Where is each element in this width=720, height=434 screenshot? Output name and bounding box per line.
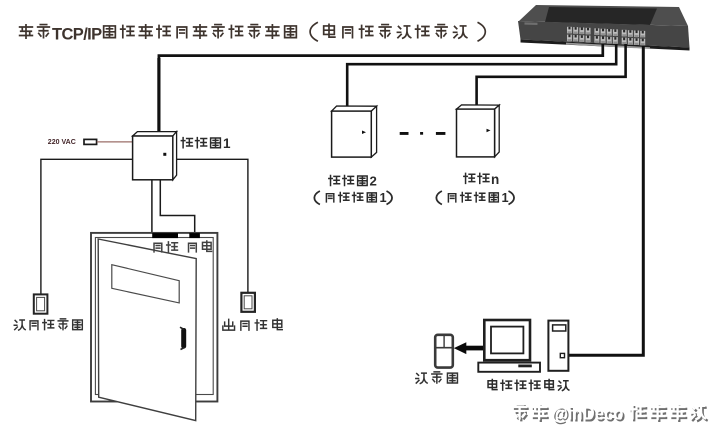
svg-text:1: 1: [502, 190, 509, 205]
svg-text:n: n: [491, 172, 499, 187]
svg-text:1: 1: [380, 190, 387, 205]
svg-text:@inDeco: @inDeco: [552, 404, 624, 424]
svg-text:220 VAC: 220 VAC: [48, 137, 76, 146]
svg-text:1: 1: [223, 136, 231, 151]
svg-text:TCP/IP: TCP/IP: [52, 25, 102, 43]
svg-text:2: 2: [370, 174, 377, 189]
